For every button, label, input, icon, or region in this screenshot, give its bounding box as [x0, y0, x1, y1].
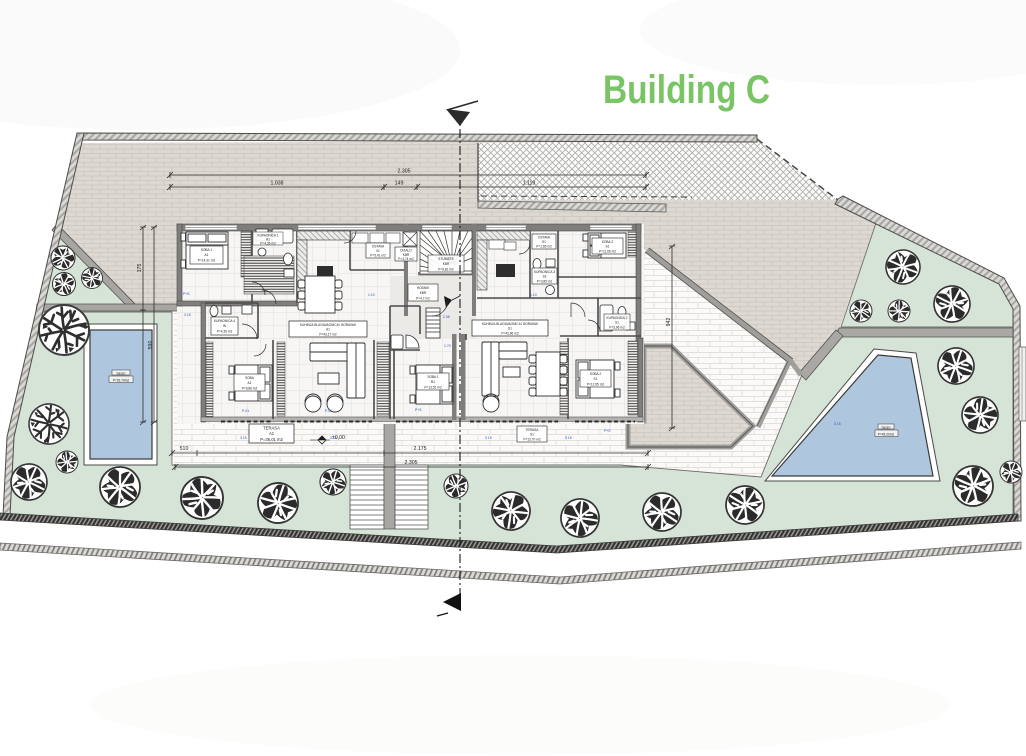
svg-text:SOBA: SOBA	[245, 376, 255, 380]
svg-text:P=12,70 m2: P=12,70 m2	[523, 437, 541, 441]
svg-text:S1: S1	[508, 327, 512, 331]
svg-text:KUPAONICA 2: KUPAONICA 2	[606, 316, 627, 320]
svg-text:2.175: 2.175	[414, 446, 427, 452]
svg-text:P+S: P+S	[604, 429, 611, 433]
svg-text:OSTAVA: OSTAVA	[538, 236, 551, 240]
svg-text:P=14,31 m2: P=14,31 m2	[198, 259, 216, 263]
svg-text:P=1,65 m2: P=1,65 m2	[536, 245, 552, 249]
svg-text:3 15: 3 15	[240, 436, 247, 440]
svg-text:P=29,70m2: P=29,70m2	[113, 379, 130, 383]
svg-text:P=11,06 m2: P=11,06 m2	[599, 249, 616, 253]
svg-text:SOBA 2: SOBA 2	[602, 240, 614, 244]
svg-text:P=5,41 m2: P=5,41 m2	[370, 254, 386, 258]
svg-text:P=12,95 m2: P=12,95 m2	[587, 383, 605, 387]
svg-text:P=3,96 m2: P=3,96 m2	[609, 325, 625, 329]
svg-text:KUHINJA BLAGAVAONICA I BORAVAK: KUHINJA BLAGAVAONICA I BORAVAK	[300, 323, 357, 327]
svg-text:P=3,74 m2: P=3,74 m2	[398, 257, 414, 261]
svg-text:1.70: 1.70	[444, 344, 451, 348]
svg-text:SOBA 2: SOBA 2	[590, 372, 602, 376]
svg-text:B1: B1	[431, 380, 435, 384]
svg-text:P-01: P-01	[325, 409, 332, 413]
svg-text:KUPAONICA 3: KUPAONICA 3	[534, 270, 555, 274]
svg-text:Building C: Building C	[603, 68, 770, 112]
svg-text:510: 510	[180, 446, 189, 452]
svg-text:375: 375	[137, 264, 143, 273]
svg-text:1.10: 1.10	[530, 293, 537, 297]
svg-text:P=4,35 m2: P=4,35 m2	[260, 241, 276, 245]
svg-text:2.305: 2.305	[398, 169, 411, 175]
svg-text:S1: S1	[594, 377, 598, 381]
svg-text:P=43,17 m2: P=43,17 m2	[319, 333, 337, 337]
svg-text:942: 942	[666, 318, 672, 327]
svg-text:A1: A1	[248, 381, 252, 385]
svg-text:590: 590	[148, 341, 154, 350]
svg-text:P=4,35 m2: P=4,35 m2	[217, 330, 233, 334]
svg-text:KUPAONICA 4: KUPAONICA 4	[214, 319, 235, 323]
svg-text:P=43,96 m2: P=43,96 m2	[501, 332, 519, 336]
svg-text:1.038: 1.038	[271, 181, 284, 187]
svg-text:bazen: bazen	[117, 371, 126, 375]
svg-text:3 15: 3 15	[834, 422, 841, 426]
svg-text:STUBISTE: STUBISTE	[438, 257, 454, 261]
svg-text:KUHINJA BLAGAVAONICA I BORAVAK: KUHINJA BLAGAVAONICA I BORAVAK	[482, 322, 539, 326]
svg-text:S1: S1	[542, 240, 546, 244]
svg-text:TERASA: TERASA	[263, 426, 280, 431]
svg-text:S1: S1	[606, 244, 610, 248]
svg-text:S1: S1	[615, 320, 619, 324]
svg-text:P=4,7 m2: P=4,7 m2	[416, 297, 430, 301]
svg-text:HODNIK: HODNIK	[417, 286, 430, 290]
svg-text:P=45,00m2: P=45,00m2	[878, 433, 895, 437]
svg-text:P+S: P+S	[415, 408, 422, 412]
svg-text:3 15: 3 15	[565, 436, 572, 440]
svg-text:1.119: 1.119	[523, 181, 536, 187]
svg-text:P=13,52 m2: P=13,52 m2	[424, 386, 442, 390]
svg-text:P=9,86 m2: P=9,86 m2	[242, 387, 258, 391]
svg-text:3 15: 3 15	[485, 436, 492, 440]
svg-text:P+S: P+S	[183, 292, 190, 296]
svg-text:149: 149	[395, 181, 404, 187]
svg-text:KBR: KBR	[420, 291, 427, 295]
svg-text:bazen: bazen	[882, 425, 891, 429]
svg-text:P=36,01 m2: P=36,01 m2	[260, 437, 283, 442]
svg-text:P=9,81 m2: P=9,81 m2	[438, 268, 454, 272]
svg-text:S3: S3	[543, 274, 547, 278]
svg-text:2.305: 2.305	[405, 460, 418, 466]
svg-text:1.10: 1.10	[368, 293, 375, 297]
svg-text:TERASA: TERASA	[526, 428, 540, 432]
svg-text:3 15: 3 15	[184, 313, 191, 317]
svg-text:KBR: KBR	[443, 262, 450, 266]
svg-text:3 15: 3 15	[330, 436, 337, 440]
svg-text:P-01: P-01	[242, 409, 249, 413]
svg-text:2.05: 2.05	[443, 315, 450, 319]
svg-text:SOBA 1: SOBA 1	[201, 248, 213, 252]
svg-text:A1: A1	[269, 431, 275, 436]
svg-text:A1: A1	[205, 253, 209, 257]
svg-text:W: W	[223, 324, 226, 328]
svg-text:OSTAVA: OSTAVA	[372, 245, 385, 249]
svg-text:SOBA 1: SOBA 1	[427, 375, 439, 379]
svg-text:01: 01	[376, 249, 380, 253]
svg-text:S1: S1	[530, 432, 534, 436]
svg-text:A1: A1	[326, 328, 330, 332]
svg-text:P=3,85 m2: P=3,85 m2	[537, 279, 553, 283]
